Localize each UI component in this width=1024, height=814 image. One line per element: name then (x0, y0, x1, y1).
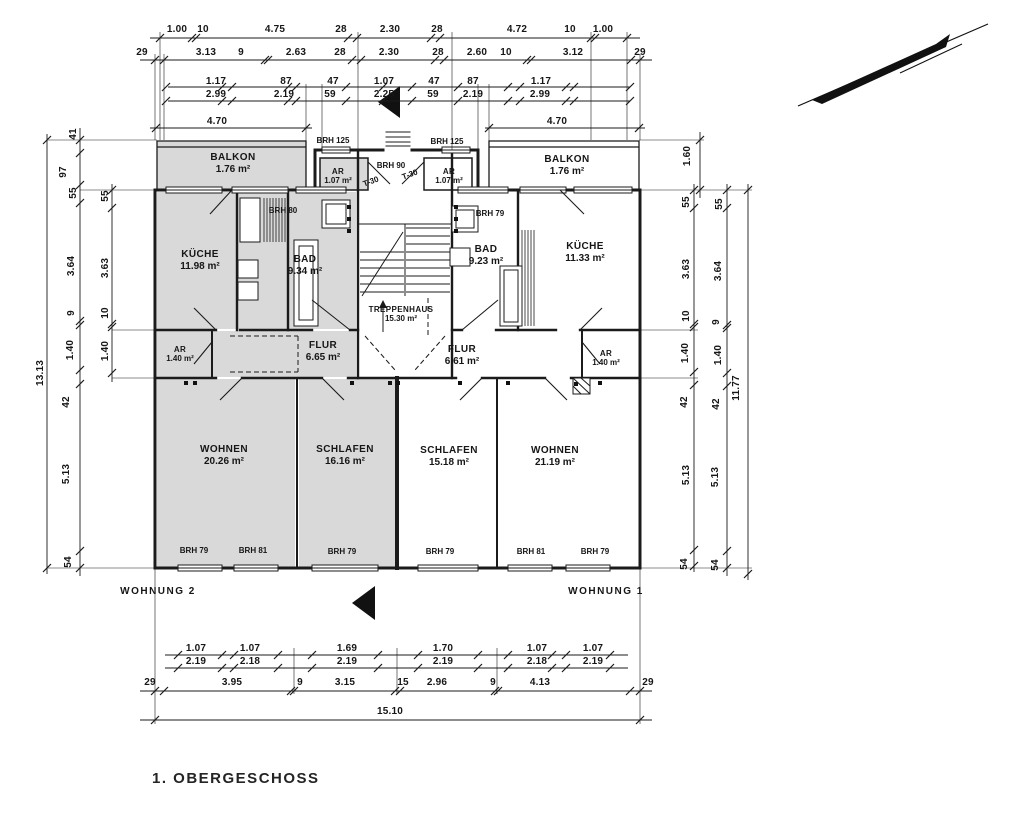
dim-label: 2.18 (240, 657, 260, 667)
room-label-wohnen-right: WOHNEN21.19 m² (531, 446, 579, 468)
dim-label: 13.13 (36, 360, 46, 386)
dim-label: 54 (680, 558, 690, 570)
apartment-label: WOHNUNG 2 (120, 587, 196, 597)
room-label-ar-mid-right: AR1.40 m² (592, 349, 620, 367)
room-area: 16.16 m² (316, 457, 374, 467)
room-name: WOHNEN (200, 445, 248, 455)
room-name: WOHNEN (531, 446, 579, 456)
dim-label: 42 (712, 398, 722, 410)
room-name: BALKON (544, 155, 589, 165)
dim-label: 1.00 (593, 25, 613, 35)
room-name: SCHLAFEN (316, 445, 374, 455)
room-name: BALKON (210, 153, 255, 163)
dim-label: 59 (427, 90, 439, 100)
dim-label: 5.13 (711, 467, 721, 487)
room-area: 21.19 m² (531, 458, 579, 468)
annotation-label: BRH 81 (239, 547, 267, 555)
room-label-bad-right: BAD9.23 m² (469, 245, 503, 267)
room-label-flur-left: FLUR6.65 m² (306, 341, 340, 363)
dim-label: 42 (680, 396, 690, 408)
room-label-wohnen-left: WOHNEN20.26 m² (200, 445, 248, 467)
dim-label: 3.64 (67, 256, 77, 276)
dim-label: 4.70 (547, 117, 567, 127)
dim-label: 2.19 (433, 657, 453, 667)
room-label-schlafen-left: SCHLAFEN16.16 m² (316, 445, 374, 467)
dim-label: 2.96 (427, 678, 447, 688)
dim-label: 1.40 (681, 343, 691, 363)
dim-label: 1.07 (186, 644, 206, 654)
dim-label: 9 (67, 310, 77, 316)
dim-label: 1.40 (101, 341, 111, 361)
dim-label: 2.99 (206, 90, 226, 100)
dim-label: 4.70 (207, 117, 227, 127)
annotation-label: BRH 125 (431, 138, 464, 146)
dim-label: 54 (64, 556, 74, 568)
room-label-balkon-right: BALKON1.76 m² (544, 155, 589, 177)
dim-label: 55 (682, 196, 692, 208)
room-label-ar-mid-left: AR1.40 m² (166, 345, 194, 363)
room-area: 1.40 m² (592, 359, 620, 367)
dim-label: 3.64 (714, 261, 724, 281)
dim-label: 47 (327, 77, 339, 87)
dim-label: 29 (634, 48, 646, 58)
dim-label: 4.75 (265, 25, 285, 35)
annotation-label: BRH 81 (517, 548, 545, 556)
dim-label: 2.19 (337, 657, 357, 667)
room-label-ar-top-right: AR1.07 m² (435, 167, 463, 185)
dim-label: 1.60 (683, 146, 693, 166)
room-area: 9.34 m² (288, 267, 322, 277)
dim-label: 3.13 (196, 48, 216, 58)
dim-label: 11.77 (732, 375, 742, 400)
dim-label: 2.18 (527, 657, 547, 667)
room-area: 6.61 m² (445, 357, 479, 367)
dim-label: 10 (500, 48, 512, 58)
room-area: 1.76 m² (210, 165, 255, 175)
dim-label: 1.07 (527, 644, 547, 654)
dim-label: 3.63 (682, 259, 692, 279)
dim-label: 15.10 (377, 707, 403, 717)
dim-label: 28 (432, 48, 444, 58)
annotation-label: BRH 79 (180, 547, 208, 555)
room-area: 15.18 m² (420, 458, 478, 468)
dim-label: 2.30 (380, 25, 400, 35)
room-label-schlafen-right: SCHLAFEN15.18 m² (420, 446, 478, 468)
dim-label: 97 (59, 166, 69, 178)
room-area: 9.23 m² (469, 257, 503, 267)
dim-label: 87 (280, 77, 292, 87)
dim-label: 54 (711, 559, 721, 571)
room-label-flur-right: FLUR6.61 m² (445, 345, 479, 367)
dim-label: 1.00 (167, 25, 187, 35)
room-name: FLUR (306, 341, 340, 351)
dim-label: 1.70 (433, 644, 453, 654)
annotation-label: BRH 90 (377, 162, 405, 170)
dim-label: 3.63 (101, 258, 111, 278)
room-name: KÜCHE (565, 242, 604, 252)
dim-label: 10 (101, 307, 111, 319)
dim-label: 9 (490, 678, 496, 688)
floor-plan-drawing (0, 0, 1024, 814)
dim-label: 2.19 (463, 90, 483, 100)
dim-label: 1.69 (337, 644, 357, 654)
dim-label: 15 (397, 678, 409, 688)
dim-label: 5.13 (682, 465, 692, 485)
dim-label: 4.72 (507, 25, 527, 35)
dim-label: 2.19 (274, 90, 294, 100)
room-name: FLUR (445, 345, 479, 355)
dim-label: 2.25 (374, 90, 394, 100)
annotation-label: BRH 79 (581, 548, 609, 556)
dim-label: 1.17 (206, 77, 226, 87)
dim-label: 9 (712, 319, 722, 325)
dim-label: 3.15 (335, 678, 355, 688)
room-area: 11.33 m² (565, 254, 604, 264)
floorplan-canvas: 1.00104.75282.30284.72101.00293.1392.632… (0, 0, 1024, 814)
room-area: 15.30 m² (369, 315, 434, 323)
dim-label: 10 (564, 25, 576, 35)
annotation-label: BRH 79 (426, 548, 454, 556)
room-area: 1.07 m² (435, 177, 463, 185)
arrow-bottom-icon (352, 586, 375, 620)
room-area: 1.40 m² (166, 355, 194, 363)
room-name: TREPPENHAUS (369, 306, 434, 314)
dim-label: 47 (428, 77, 440, 87)
room-area: 6.65 m² (306, 353, 340, 363)
dim-label: 55 (715, 198, 725, 210)
room-name: BAD (469, 245, 503, 255)
dim-label: 59 (324, 90, 336, 100)
dim-label: 1.40 (66, 340, 76, 360)
annotation-label: BRH 125 (317, 137, 350, 145)
dim-label: 29 (642, 678, 654, 688)
pen-mark (798, 24, 988, 106)
room-name: KÜCHE (180, 250, 219, 260)
dim-label: 2.63 (286, 48, 306, 58)
annotation-label: BRH 79 (476, 210, 504, 218)
room-name: AR (166, 346, 194, 354)
room-label-balkon-left: BALKON1.76 m² (210, 153, 255, 175)
room-name: BAD (288, 255, 322, 265)
drawing-title: 1. OBERGESCHOSS (152, 770, 320, 787)
dim-label: 55 (69, 187, 79, 199)
room-name: AR (592, 350, 620, 358)
room-name: AR (435, 168, 463, 176)
room-name: AR (324, 168, 352, 176)
dim-label: 1.07 (374, 77, 394, 87)
dim-label: 10 (682, 310, 692, 322)
dim-label: 29 (136, 48, 148, 58)
dim-label: 1.07 (583, 644, 603, 654)
room-label-bad-left: BAD9.34 m² (288, 255, 322, 277)
room-name: SCHLAFEN (420, 446, 478, 456)
dim-label: 4.13 (530, 678, 550, 688)
annotation-label: BRH 79 (328, 548, 356, 556)
dim-label: 29 (144, 678, 156, 688)
dim-label: 3.12 (563, 48, 583, 58)
dim-label: 2.19 (186, 657, 206, 667)
room-area: 1.07 m² (324, 177, 352, 185)
dim-label: 55 (101, 190, 111, 202)
dim-label: 1.40 (714, 345, 724, 365)
dim-label: 41 (69, 128, 79, 140)
dim-label: 3.95 (222, 678, 242, 688)
room-label-kueche-right: KÜCHE11.33 m² (565, 242, 604, 264)
annotation-label: BRH 80 (269, 207, 297, 215)
dim-label: 2.30 (379, 48, 399, 58)
dim-label: 28 (334, 48, 346, 58)
dim-label: 28 (431, 25, 443, 35)
dim-label: 87 (467, 77, 479, 87)
room-area: 20.26 m² (200, 457, 248, 467)
dim-label: 5.13 (62, 464, 72, 484)
dim-label: 28 (335, 25, 347, 35)
dim-label: 2.99 (530, 90, 550, 100)
dim-label: 9 (297, 678, 303, 688)
dim-label: 1.17 (531, 77, 551, 87)
room-area: 1.76 m² (544, 167, 589, 177)
dim-label: 2.19 (583, 657, 603, 667)
room-label-ar-top-left: AR1.07 m² (324, 167, 352, 185)
room-label-treppenhaus: TREPPENHAUS15.30 m² (369, 305, 434, 323)
room-label-kueche-left: KÜCHE11.98 m² (180, 250, 219, 272)
room-area: 11.98 m² (180, 262, 219, 272)
dim-label: 10 (197, 25, 209, 35)
dim-label: 1.07 (240, 644, 260, 654)
dim-label: 2.60 (467, 48, 487, 58)
apartment-label: WOHNUNG 1 (568, 587, 644, 597)
dim-label: 9 (238, 48, 244, 58)
dim-label: 42 (62, 396, 72, 408)
